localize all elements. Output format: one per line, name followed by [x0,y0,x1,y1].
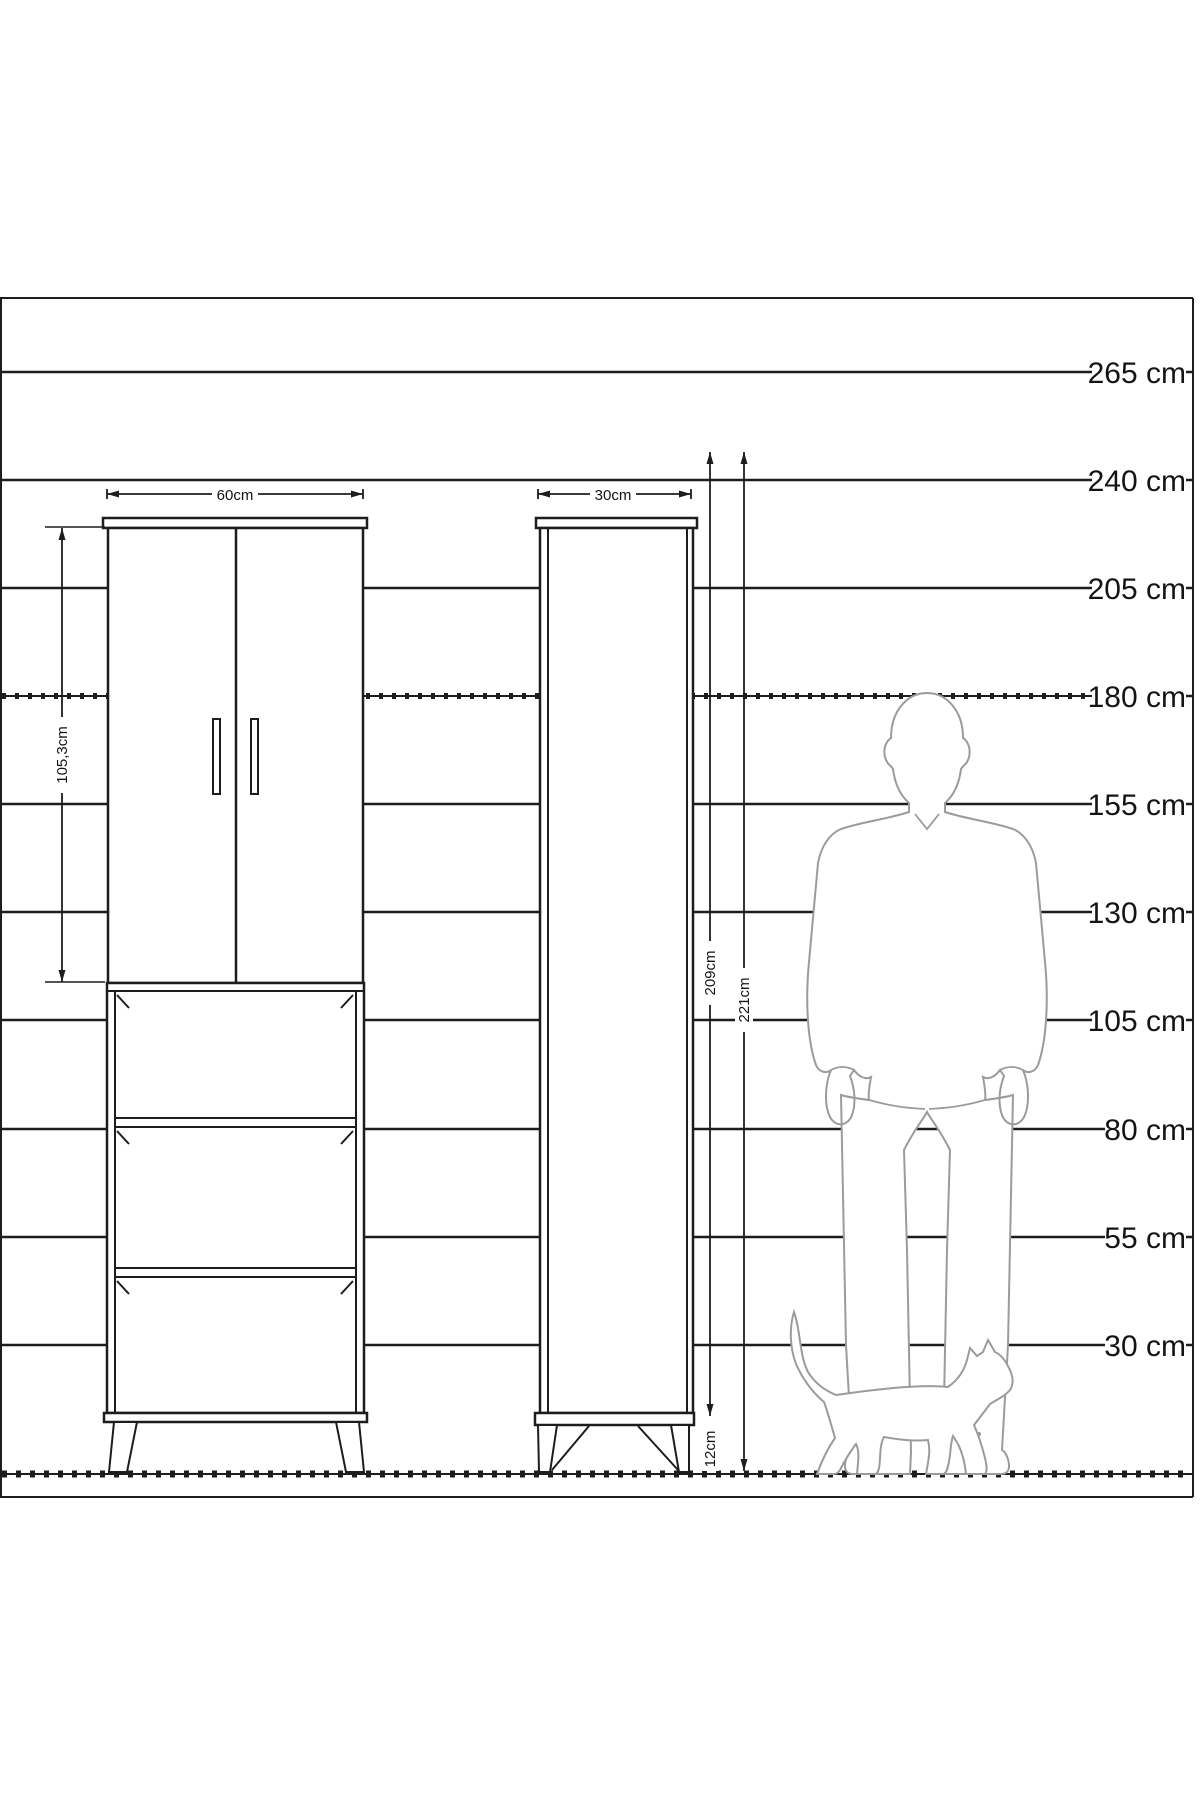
arrow-down-icon [741,1459,748,1471]
arrow-up-icon [59,528,66,540]
scale-label-130: 130 cm [1088,897,1186,930]
shelf-middle-1 [115,1118,356,1127]
door-height-label: 105,3cm [54,726,71,784]
right-width-label: 30cm [595,487,632,504]
left-cabinet-leg-left [109,1422,137,1472]
right-cabinet-leg-left [538,1425,557,1472]
arrow-right-icon [679,491,691,498]
dimension-left-width: 60cm [107,485,363,504]
arrow-left-icon [107,491,119,498]
scale-label-180: 180 cm [1088,681,1186,714]
door-handle-right [251,719,258,794]
dimension-right-width: 30cm [538,485,691,504]
arrow-left-icon [538,491,550,498]
body-height-label: 209cm [702,950,719,995]
body-height-label-group: 209cm [701,941,719,1005]
left-cabinet-bottom-panel [104,1413,367,1422]
dimension-body-height: 209cm [701,452,719,1416]
right-cabinet-side-view [535,518,697,1472]
scale-label-55: 55 cm [1104,1222,1186,1255]
scale-label-80: 80 cm [1104,1114,1186,1147]
dimension-total-height: 221cm [735,452,753,1471]
dimension-leg-height: 12cm [701,1427,719,1471]
scale-label-30: 30 cm [1104,1330,1186,1363]
arrow-up-icon [707,452,714,464]
total-height-label: 221cm [736,977,753,1022]
right-cabinet-body [540,528,693,1413]
cat-fur-dot [977,1432,981,1436]
door-handle-left [213,719,220,794]
right-cabinet-bottom-panel [535,1413,694,1425]
leg-height-label-group: 12cm [701,1427,719,1471]
scale-label-205: 205 cm [1088,573,1186,606]
dimension-door-height: 105,3cm [45,527,105,982]
left-cabinet-top-panel [103,518,367,528]
leg-brace-left [552,1426,589,1470]
scale-label-240: 240 cm [1088,465,1186,498]
scale-label-155: 155 cm [1088,789,1186,822]
right-cabinet-top-panel [536,518,697,528]
scale-label-265: 265 cm [1088,357,1186,390]
left-cabinet-shelf-section [107,983,364,1413]
person-silhouette [807,693,1047,1474]
person-outline [807,693,1047,1474]
scale-label-column: 265 cm 240 cm 205 cm 180 cm 155 cm 130 c… [1088,357,1186,1363]
left-cabinet-front-view [103,518,367,1472]
total-height-label-group: 221cm [735,968,753,1032]
arrow-up-icon [741,452,748,464]
arrow-down-icon [59,970,66,982]
leg-height-label: 12cm [702,1431,719,1468]
arrow-down-icon [707,1404,714,1416]
dimension-diagram: 265 cm 240 cm 205 cm 180 cm 155 cm 130 c… [0,0,1200,1800]
scale-label-105: 105 cm [1088,1005,1186,1038]
arrow-right-icon [351,491,363,498]
left-cabinet-leg-right [336,1422,364,1472]
door-height-label-group: 105,3cm [53,717,71,793]
diagram-canvas: 265 cm 240 cm 205 cm 180 cm 155 cm 130 c… [0,0,1200,1800]
left-width-label: 60cm [217,487,254,504]
shelf-middle-2 [115,1268,356,1277]
